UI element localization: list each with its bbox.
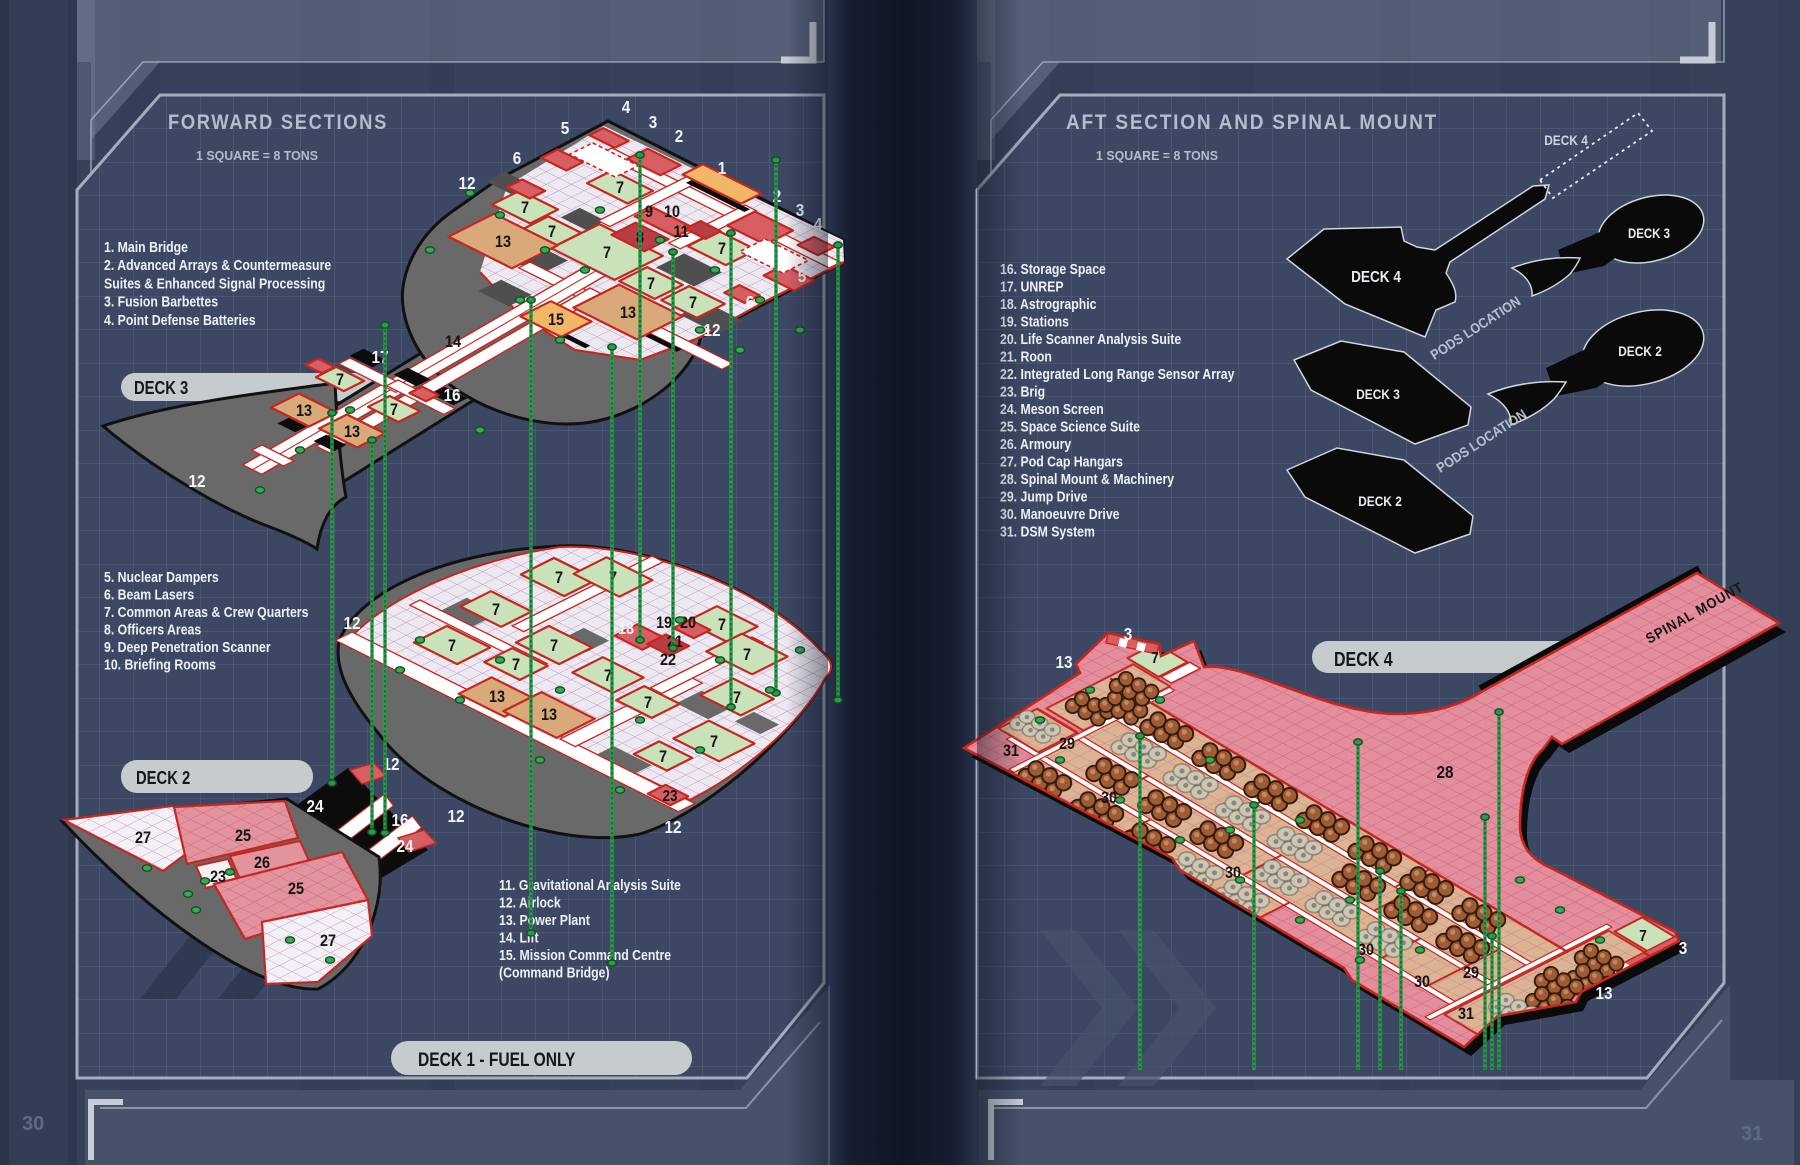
svg-text:4. Point Defense Batteries: 4. Point Defense Batteries bbox=[104, 312, 256, 328]
svg-text:DECK 2: DECK 2 bbox=[1618, 343, 1662, 359]
svg-text:DECK 1 - FUEL ONLY: DECK 1 - FUEL ONLY bbox=[418, 1049, 576, 1071]
svg-text:22: 22 bbox=[660, 651, 676, 669]
svg-text:3. Fusion Barbettes: 3. Fusion Barbettes bbox=[104, 293, 218, 309]
svg-text:12: 12 bbox=[664, 817, 681, 837]
svg-text:13: 13 bbox=[620, 304, 636, 322]
svg-text:22. Integrated Long Range Sens: 22. Integrated Long Range Sensor Array bbox=[1000, 366, 1235, 382]
svg-text:7: 7 bbox=[644, 694, 652, 712]
svg-text:7: 7 bbox=[548, 223, 556, 241]
svg-text:24: 24 bbox=[306, 796, 324, 816]
svg-text:23: 23 bbox=[662, 788, 677, 805]
svg-text:DECK 4: DECK 4 bbox=[1544, 132, 1588, 148]
svg-text:13. Power Plant: 13. Power Plant bbox=[499, 912, 590, 928]
svg-text:DECK 2: DECK 2 bbox=[136, 767, 190, 788]
svg-text:DECK 3: DECK 3 bbox=[1628, 226, 1670, 241]
svg-text:7: 7 bbox=[390, 401, 398, 419]
svg-text:11: 11 bbox=[673, 223, 688, 241]
svg-text:25: 25 bbox=[288, 880, 304, 898]
svg-text:13: 13 bbox=[495, 233, 511, 251]
svg-text:13: 13 bbox=[344, 423, 360, 441]
svg-text:7: 7 bbox=[521, 199, 529, 217]
svg-text:7: 7 bbox=[492, 601, 500, 619]
svg-text:10. Briefing Rooms: 10. Briefing Rooms bbox=[104, 656, 216, 672]
svg-text:FORWARD SECTIONS: FORWARD SECTIONS bbox=[168, 110, 388, 134]
svg-text:19: 19 bbox=[656, 614, 672, 632]
svg-text:3: 3 bbox=[1124, 624, 1133, 644]
svg-text:16: 16 bbox=[391, 810, 408, 830]
svg-text:30: 30 bbox=[22, 1113, 44, 1135]
svg-text:13: 13 bbox=[489, 688, 505, 706]
svg-text:12: 12 bbox=[188, 471, 205, 491]
svg-text:13: 13 bbox=[296, 402, 312, 420]
svg-text:7: 7 bbox=[710, 733, 718, 751]
svg-text:6: 6 bbox=[513, 148, 522, 168]
svg-text:1 SQUARE = 8 TONS: 1 SQUARE = 8 TONS bbox=[196, 149, 318, 163]
svg-text:26: 26 bbox=[254, 854, 270, 872]
svg-text:12: 12 bbox=[447, 806, 464, 826]
svg-text:10: 10 bbox=[664, 203, 680, 221]
svg-text:20. Life Scanner Analysis Suit: 20. Life Scanner Analysis Suite bbox=[1000, 331, 1182, 347]
svg-text:30: 30 bbox=[1101, 789, 1117, 807]
svg-text:5. Nuclear Dampers: 5. Nuclear Dampers bbox=[104, 569, 219, 585]
svg-text:7: 7 bbox=[718, 240, 726, 258]
svg-text:5: 5 bbox=[561, 118, 570, 138]
svg-text:6: 6 bbox=[746, 292, 755, 312]
svg-text:30: 30 bbox=[1414, 973, 1430, 991]
svg-text:7: 7 bbox=[743, 646, 751, 664]
svg-text:7: 7 bbox=[448, 637, 456, 655]
svg-text:1. Main Bridge: 1. Main Bridge bbox=[104, 239, 188, 255]
svg-text:4: 4 bbox=[622, 97, 631, 117]
svg-text:2: 2 bbox=[675, 126, 684, 146]
svg-text:Suites & Enhanced Signal Proce: Suites & Enhanced Signal Processing bbox=[104, 275, 325, 291]
svg-text:7: 7 bbox=[1151, 650, 1159, 667]
svg-text:28. Spinal Mount & Machinery: 28. Spinal Mount & Machinery bbox=[1000, 471, 1174, 487]
svg-text:3: 3 bbox=[649, 112, 658, 132]
svg-text:7. Common Areas & Crew Quarter: 7. Common Areas & Crew Quarters bbox=[104, 604, 309, 620]
svg-text:(Command Bridge): (Command Bridge) bbox=[499, 964, 610, 980]
svg-text:13: 13 bbox=[1595, 983, 1612, 1003]
svg-text:16: 16 bbox=[443, 385, 460, 405]
svg-text:DECK 4: DECK 4 bbox=[1334, 648, 1393, 670]
svg-text:6. Beam Lasers: 6. Beam Lasers bbox=[104, 586, 195, 602]
svg-text:7: 7 bbox=[659, 748, 667, 766]
svg-text:7: 7 bbox=[512, 656, 520, 674]
svg-text:DECK 3: DECK 3 bbox=[134, 377, 188, 398]
svg-text:7: 7 bbox=[550, 637, 558, 655]
svg-text:1 SQUARE = 8 TONS: 1 SQUARE = 8 TONS bbox=[1096, 149, 1218, 163]
svg-text:29: 29 bbox=[1059, 735, 1075, 753]
svg-text:3: 3 bbox=[1679, 938, 1688, 958]
svg-text:31: 31 bbox=[1458, 1005, 1474, 1023]
svg-text:9: 9 bbox=[645, 203, 653, 221]
svg-text:DECK 2: DECK 2 bbox=[1358, 493, 1402, 509]
svg-text:27: 27 bbox=[320, 932, 336, 950]
svg-text:7: 7 bbox=[647, 275, 655, 293]
svg-text:27: 27 bbox=[135, 829, 151, 847]
svg-text:7: 7 bbox=[616, 179, 624, 197]
svg-text:7: 7 bbox=[718, 616, 726, 634]
svg-text:DECK 3: DECK 3 bbox=[1356, 386, 1400, 402]
svg-text:12: 12 bbox=[343, 613, 360, 633]
svg-text:13: 13 bbox=[541, 706, 557, 724]
svg-text:18: 18 bbox=[618, 620, 634, 638]
svg-text:28: 28 bbox=[1436, 762, 1453, 782]
svg-text:7: 7 bbox=[336, 371, 344, 389]
svg-text:9. Deep Penetration Scanner: 9. Deep Penetration Scanner bbox=[104, 639, 271, 655]
svg-text:31: 31 bbox=[1741, 1123, 1763, 1145]
svg-text:AFT SECTION AND SPINAL MOUNT: AFT SECTION AND SPINAL MOUNT bbox=[1066, 110, 1438, 134]
svg-text:15: 15 bbox=[548, 311, 564, 329]
svg-text:24: 24 bbox=[396, 836, 414, 856]
svg-text:DECK 4: DECK 4 bbox=[1351, 269, 1401, 286]
svg-text:11. Gravitational Analysis Sui: 11. Gravitational Analysis Suite bbox=[499, 877, 681, 893]
svg-text:7: 7 bbox=[603, 244, 611, 262]
svg-text:1: 1 bbox=[718, 158, 727, 178]
svg-text:7: 7 bbox=[1639, 928, 1647, 945]
svg-text:7: 7 bbox=[689, 294, 697, 312]
svg-text:23: 23 bbox=[210, 868, 226, 886]
svg-text:8. Officers Areas: 8. Officers Areas bbox=[104, 621, 202, 637]
svg-text:7: 7 bbox=[555, 569, 563, 587]
svg-text:25: 25 bbox=[235, 827, 251, 845]
svg-text:13: 13 bbox=[1055, 652, 1072, 672]
svg-text:15. Mission Command Centre: 15. Mission Command Centre bbox=[499, 947, 671, 963]
svg-text:12: 12 bbox=[703, 320, 720, 340]
svg-text:14: 14 bbox=[445, 333, 461, 351]
svg-text:2. Advanced Arrays & Counterme: 2. Advanced Arrays & Countermeasure bbox=[104, 257, 332, 273]
svg-text:29: 29 bbox=[1463, 964, 1479, 982]
